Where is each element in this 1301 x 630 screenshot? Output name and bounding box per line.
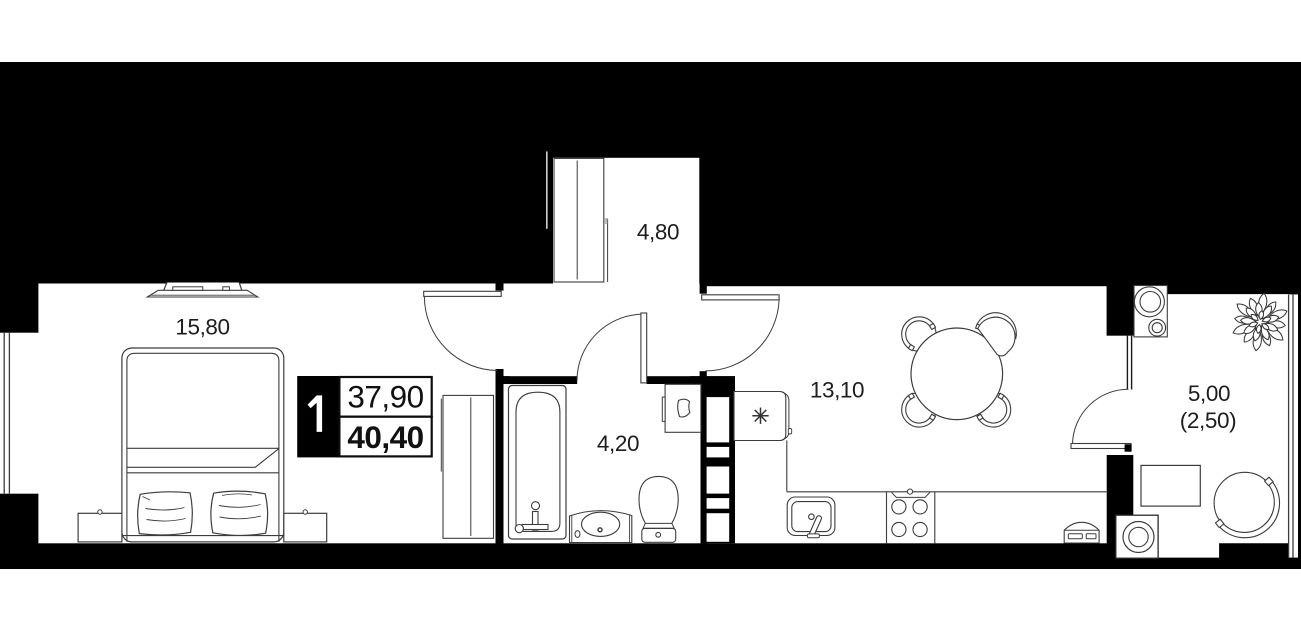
svg-text:37,90: 37,90 — [347, 379, 423, 415]
svg-text:40,40: 40,40 — [347, 419, 423, 455]
svg-text:15,80: 15,80 — [175, 315, 229, 340]
svg-text:5,00: 5,00 — [1188, 381, 1230, 406]
svg-text:13,10: 13,10 — [810, 378, 864, 403]
svg-text:4,80: 4,80 — [637, 220, 679, 245]
svg-text:(2,50): (2,50) — [1180, 408, 1236, 433]
svg-text:4,20: 4,20 — [597, 431, 639, 456]
